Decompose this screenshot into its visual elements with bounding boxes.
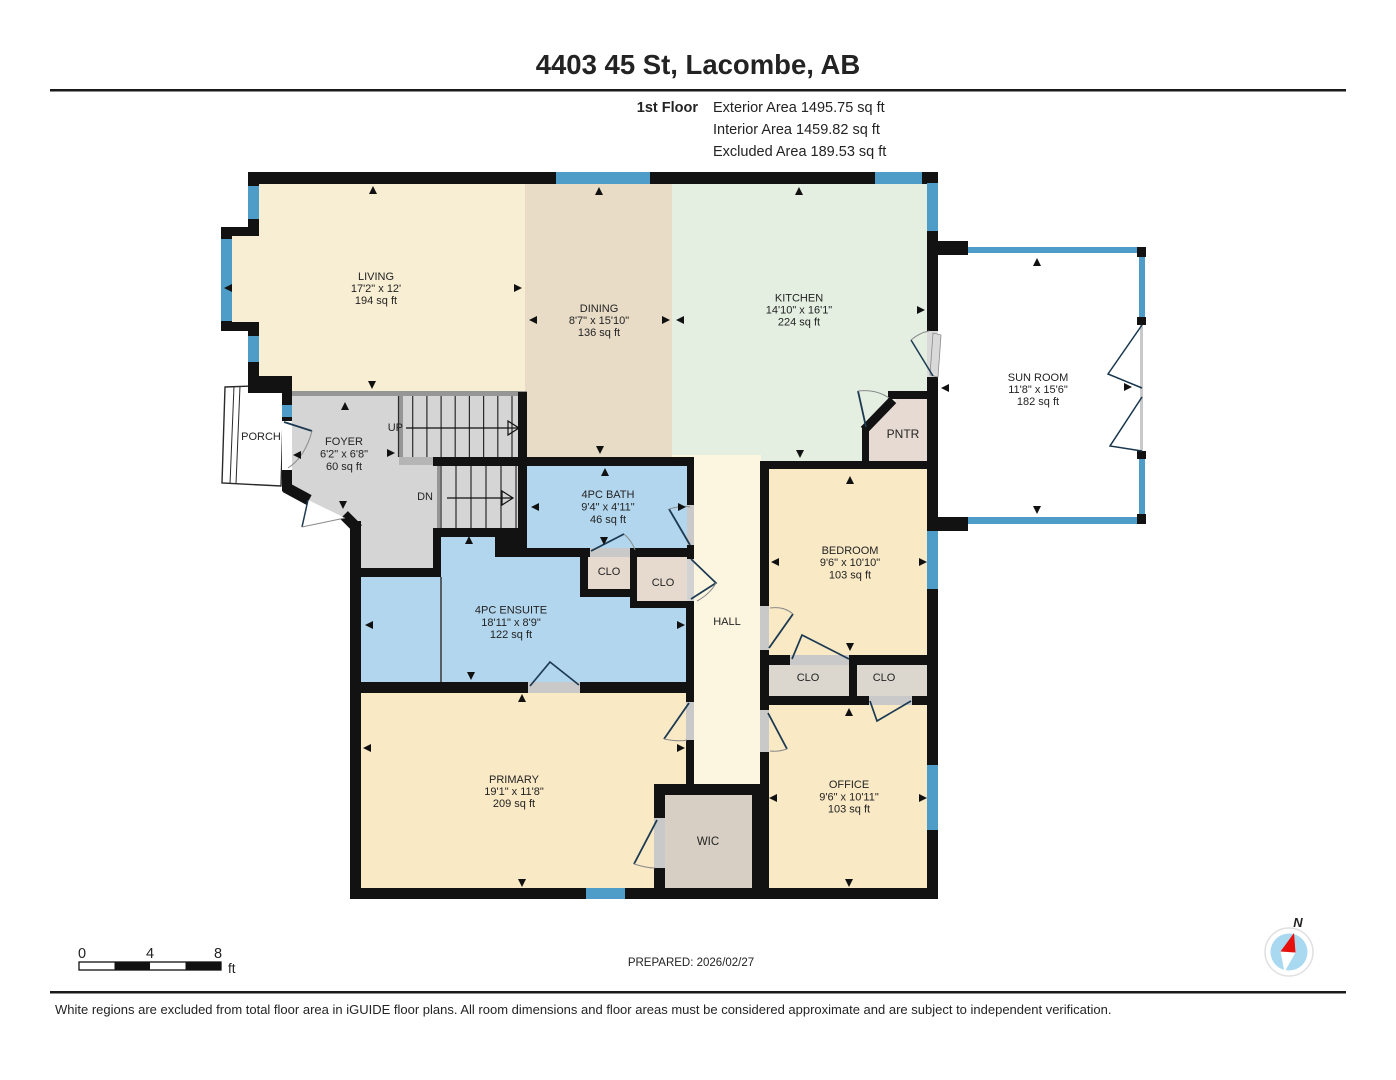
svg-text:SUN ROOM: SUN ROOM <box>1008 372 1069 384</box>
svg-text:CLO: CLO <box>873 672 896 684</box>
svg-text:BEDROOM: BEDROOM <box>822 545 879 557</box>
svg-text:WIC: WIC <box>697 836 719 848</box>
svg-text:9'6" x 10'11": 9'6" x 10'11" <box>819 792 879 804</box>
svg-text:9'6" x 10'10": 9'6" x 10'10" <box>820 557 880 569</box>
svg-text:Exterior Area 1495.75 sq ft: Exterior Area 1495.75 sq ft <box>713 100 885 116</box>
svg-text:4403 45 St, Lacombe, AB: 4403 45 St, Lacombe, AB <box>536 49 861 80</box>
svg-text:UP: UP <box>388 422 403 434</box>
svg-text:CLO: CLO <box>797 672 820 684</box>
svg-text:OFFICE: OFFICE <box>829 779 869 791</box>
svg-text:KITCHEN: KITCHEN <box>775 293 823 305</box>
svg-text:DINING: DINING <box>580 303 619 315</box>
svg-text:PORCH: PORCH <box>241 431 281 443</box>
svg-text:182 sq ft: 182 sq ft <box>1017 396 1059 408</box>
svg-text:46 sq ft: 46 sq ft <box>590 514 626 526</box>
svg-text:19'1" x 11'8": 19'1" x 11'8" <box>484 786 544 798</box>
svg-text:17'2" x 12': 17'2" x 12' <box>351 283 401 295</box>
svg-text:224 sq ft: 224 sq ft <box>778 317 820 329</box>
svg-text:4PC ENSUITE: 4PC ENSUITE <box>475 605 547 617</box>
svg-text:9'4" x 4'11": 9'4" x 4'11" <box>581 502 634 514</box>
svg-text:CLO: CLO <box>598 566 621 578</box>
svg-text:Interior Area 1459.82 sq ft: Interior Area 1459.82 sq ft <box>713 122 880 138</box>
svg-text:122 sq ft: 122 sq ft <box>490 629 532 641</box>
svg-text:FOYER: FOYER <box>325 436 363 448</box>
svg-text:PRIMARY: PRIMARY <box>489 774 540 786</box>
svg-text:DN: DN <box>417 491 433 503</box>
svg-text:194 sq ft: 194 sq ft <box>355 295 397 307</box>
svg-text:60 sq ft: 60 sq ft <box>326 461 362 473</box>
svg-text:8'7" x 15'10": 8'7" x 15'10" <box>569 315 629 327</box>
svg-text:1st Floor: 1st Floor <box>637 100 699 116</box>
svg-text:PNTR: PNTR <box>887 427 920 441</box>
svg-text:103 sq ft: 103 sq ft <box>828 804 870 816</box>
svg-text:N: N <box>1293 915 1303 930</box>
svg-text:Excluded Area 189.53 sq ft: Excluded Area 189.53 sq ft <box>713 144 886 160</box>
svg-text:CLO: CLO <box>652 577 675 589</box>
svg-text:11'8" x 15'6": 11'8" x 15'6" <box>1008 384 1068 396</box>
svg-text:14'10" x 16'1": 14'10" x 16'1" <box>766 305 833 317</box>
svg-text:209 sq ft: 209 sq ft <box>493 798 535 810</box>
svg-text:PREPARED: 2026/02/27: PREPARED: 2026/02/27 <box>628 957 754 969</box>
svg-text:136 sq ft: 136 sq ft <box>578 327 620 339</box>
svg-text:4: 4 <box>146 946 154 962</box>
svg-text:18'11" x 8'9": 18'11" x 8'9" <box>481 617 541 629</box>
svg-text:4PC BATH: 4PC BATH <box>582 489 635 501</box>
svg-text:White regions are excluded fro: White regions are excluded from total fl… <box>55 1002 1111 1017</box>
svg-text:6'2" x 6'8": 6'2" x 6'8" <box>320 449 368 461</box>
svg-text:LIVING: LIVING <box>358 271 394 283</box>
svg-text:8: 8 <box>214 946 222 962</box>
svg-text:ft: ft <box>228 961 236 976</box>
svg-text:0: 0 <box>78 946 86 962</box>
svg-text:HALL: HALL <box>713 616 741 628</box>
svg-text:103 sq ft: 103 sq ft <box>829 570 871 582</box>
